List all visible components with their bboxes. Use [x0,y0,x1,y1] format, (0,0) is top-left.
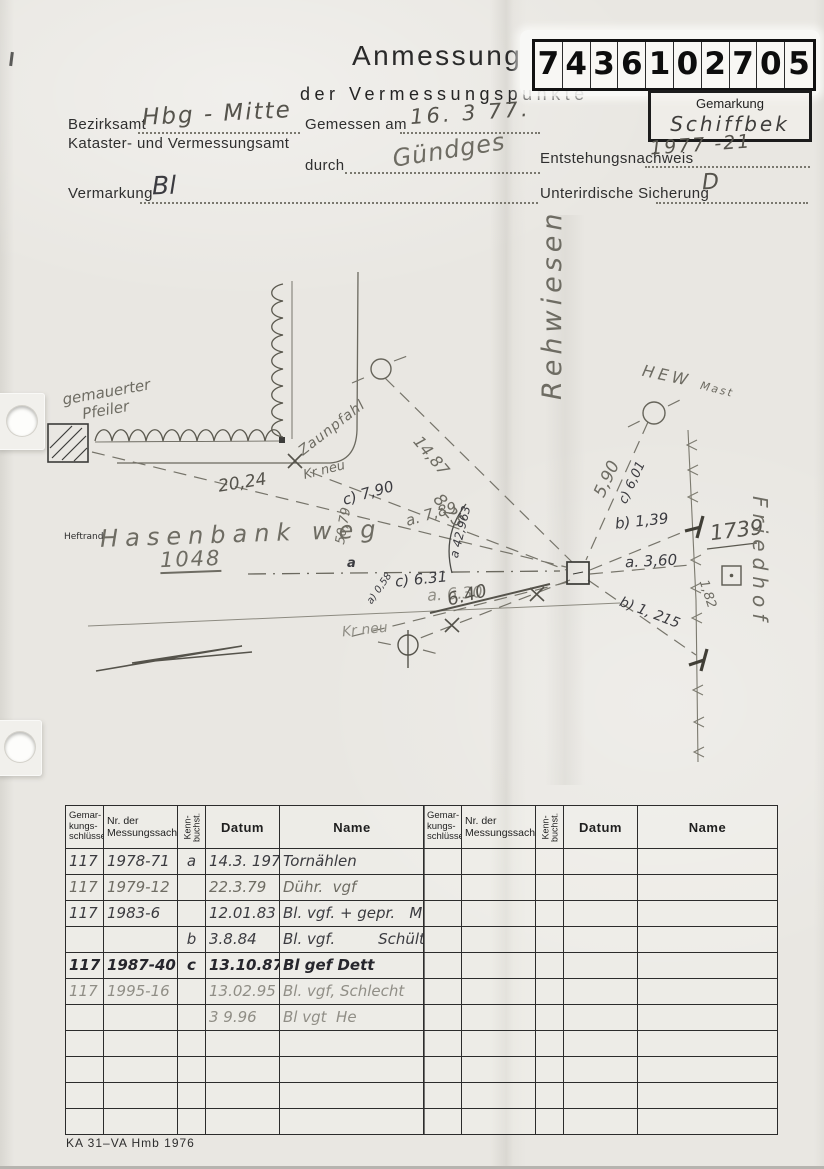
table-cell: 117 [66,901,104,927]
table-cell [536,1109,564,1135]
zaunpfahl-circle [371,359,391,379]
table-cell [462,1109,536,1135]
table-row [424,1109,778,1135]
table-row: 1171978-71a14.3. 1978Tornählen [66,849,425,875]
table-cell [462,1005,536,1031]
table-cell [206,1057,280,1083]
table-row [424,1005,778,1031]
table-cell [536,979,564,1005]
measurement-table-right: Gemar-kungs-schlüsselNr. derMessungssach… [423,805,778,1135]
handwritten-entry: 3.8.84 [209,930,257,948]
table-cell [564,849,638,875]
table-header-row: Gemar-kungs-schlüsselNr. derMessungssach… [66,806,425,849]
table-cell [462,1057,536,1083]
table-cell [104,1031,178,1057]
table-cell [104,1109,178,1135]
handwritten-entry: a [187,852,196,870]
table-cell [462,875,536,901]
column-header: Gemar-kungs-schlüssel [424,806,462,849]
handwritten-entry: Bl. vgf. + gepr. Ma [283,904,425,922]
table-cell [424,875,462,901]
table-cell: Bl. vgf. Schültke [280,927,425,953]
table-cell [206,1031,280,1057]
table-cell [178,1083,206,1109]
column-header: Name [280,806,425,849]
survey-rays [92,355,696,655]
table-cell [462,1031,536,1057]
table-row [424,1057,778,1083]
handwritten-entry: 3 9.96 [209,1008,257,1026]
table-cell [104,927,178,953]
table-cell [462,979,536,1005]
table-cell: 22.3.79 [206,875,280,901]
table-cell: 1978-71 [104,849,178,875]
table-cell [178,1057,206,1083]
pillar-symbol [48,424,88,462]
table-cell: 117 [66,953,104,979]
table-cell: b [178,927,206,953]
table-cell [280,1031,425,1057]
handwritten-entry: 1983-6 [107,904,160,922]
table-cell: 1979-12 [104,875,178,901]
handwritten-entry: 22.3.79 [209,878,266,896]
table-cell [564,1005,638,1031]
table-row [66,1031,425,1057]
table-cell [564,1031,638,1057]
table-cell [536,901,564,927]
table-row [424,901,778,927]
scanned-survey-form: Anmessung der Vermessungspunkte 7 4 3 6 … [0,0,824,1169]
table-cell [424,1057,462,1083]
table-cell [536,1005,564,1031]
table-cell [66,1005,104,1031]
table-cell [564,953,638,979]
table-cell [424,1005,462,1031]
table-row [424,1031,778,1057]
table-cell [424,1031,462,1057]
table-row [66,1083,425,1109]
table-cell: 117 [66,849,104,875]
table-cell [178,875,206,901]
table-cell [462,901,536,927]
column-header: Kenn-buchst. [536,806,564,849]
table-cell [424,849,462,875]
table-cell [536,953,564,979]
table-cell [536,1031,564,1057]
table-cell [280,1057,425,1083]
table-header-row: Gemar-kungs-schlüsselNr. derMessungssach… [424,806,778,849]
table-cell [564,901,638,927]
table-cell [206,1109,280,1135]
fence-post-band [272,281,292,439]
table-cell [178,901,206,927]
table-row [424,875,778,901]
table-cell: 3.8.84 [206,927,280,953]
table-cell [638,1057,778,1083]
table-cell [104,1057,178,1083]
table-cell [66,1057,104,1083]
table-cell [424,1083,462,1109]
table-cell [66,927,104,953]
column-header: Gemar-kungs-schlüssel [66,806,104,849]
table-cell: 1983-6 [104,901,178,927]
table-cell [66,1083,104,1109]
table-cell [462,1083,536,1109]
handwritten-entry: 13.10.87 [209,956,280,974]
table-cell [424,979,462,1005]
table-cell [564,1109,638,1135]
table-row [66,1057,425,1083]
scribble [96,646,252,671]
table-row: 1171983-612.01.83Bl. vgf. + gepr. Ma [66,901,425,927]
table-cell [178,1005,206,1031]
handwritten-entry: Tornählen [283,852,357,870]
table-cell [638,849,778,875]
sketch-label-1048: 1048 [160,546,222,574]
handwritten-entry: Bl. vgf. Schültke [283,930,425,948]
table-row: b3.8.84Bl. vgf. Schültke [66,927,425,953]
table-cell [536,927,564,953]
table-row: 1171987-40c13.10.87Bl gef Dett [66,953,425,979]
table-cell [564,875,638,901]
handwritten-entry: 13.02.95 [209,982,276,1000]
handwritten-entry: 12.01.83 [209,904,276,922]
table-cell [638,927,778,953]
table-cell [104,1083,178,1109]
table-cell: 13.02.95 [206,979,280,1005]
table-cell [638,1083,778,1109]
table: Gemar-kungs-schlüsselNr. derMessungssach… [65,805,425,1135]
handwritten-entry: 117 [69,956,100,974]
table-cell: 117 [66,979,104,1005]
krneu-circle [398,630,418,668]
sketch-measure-a360: a. 3,60 [625,551,678,572]
table-cell [638,1005,778,1031]
table-cell [564,1083,638,1109]
sketch-point-letter-a: a [347,556,356,571]
table-row [424,979,778,1005]
table-row: 3 9.96Bl vgt He [66,1005,425,1031]
table-cell [424,953,462,979]
table-cell: Bl. vgf. + gepr. Ma [280,901,425,927]
handwritten-entry: Bl. vgf, Schlecht [283,982,404,1000]
table-row: 1171995-1613.02.95Bl. vgf, Schlecht [66,979,425,1005]
table-cell [462,849,536,875]
handwritten-entry: 1987-40 [107,956,176,974]
column-header: Kenn-buchst. [178,806,206,849]
sketch-label-friedhof: Friedhof [748,496,772,626]
table-cell [462,927,536,953]
table-cell: Dühr. vgf [280,875,425,901]
handwritten-entry: 1979-12 [107,878,170,896]
table-cell [424,1109,462,1135]
fence-coil [95,430,285,443]
table-cell: Bl. vgf, Schlecht [280,979,425,1005]
column-header: Nr. derMessungssache [462,806,536,849]
table-cell [66,1109,104,1135]
table-cell [638,1109,778,1135]
handwritten-entry: 1995-16 [107,982,170,1000]
table-cell: 12.01.83 [206,901,280,927]
table-cell [536,1057,564,1083]
table-cell [104,1005,178,1031]
handwritten-entry: 117 [69,878,98,896]
handwritten-entry: 117 [69,852,98,870]
table-row [424,1083,778,1109]
table-cell [424,901,462,927]
table-cell [638,901,778,927]
table-cell: 13.10.87 [206,953,280,979]
table-cell: Bl vgt He [280,1005,425,1031]
table-cell [178,979,206,1005]
sketch-label-rehwiesen: Rehwiesen [537,209,568,400]
table-cell: 117 [66,875,104,901]
table-cell: a [178,849,206,875]
table-cell: 1995-16 [104,979,178,1005]
table-row [424,849,778,875]
table-cell: 1987-40 [104,953,178,979]
table-cell [462,953,536,979]
table-cell [564,979,638,1005]
table-row [66,1109,425,1135]
column-header: Datum [564,806,638,849]
column-header: Nr. derMessungssache [104,806,178,849]
table-cell [536,849,564,875]
table-cell [638,979,778,1005]
table-row: 1171979-1222.3.79Dühr. vgf [66,875,425,901]
handwritten-entry: b [187,930,197,948]
table-cell [280,1083,425,1109]
column-header: Datum [206,806,280,849]
table-cell [638,875,778,901]
central-point-square [567,562,589,584]
table-cell [564,927,638,953]
handwritten-entry: 14.3. 1978 [209,852,280,870]
table-cell: Bl gef Dett [280,953,425,979]
measurement-table-left: Gemar-kungs-schlüsselNr. derMessungssach… [65,805,425,1135]
table-cell: c [178,953,206,979]
table-cell [178,1031,206,1057]
handwritten-entry: c [187,956,196,974]
table-cell [178,1109,206,1135]
table: Gemar-kungs-schlüsselNr. derMessungssach… [423,805,778,1135]
handwritten-entry: 117 [69,904,98,922]
table-cell [536,875,564,901]
table-cell [638,1031,778,1057]
table-cell [280,1109,425,1135]
column-header: Name [638,806,778,849]
handwritten-entry: Dühr. vgf [283,878,356,896]
handwritten-entry: Bl vgt He [283,1008,357,1026]
handwritten-entry: 117 [69,982,98,1000]
form-code: KA 31–VA Hmb 1976 [66,1136,195,1150]
table-cell [638,953,778,979]
heftrand-label: Heftrand [64,532,103,542]
table-cell [424,927,462,953]
table-cell: 3 9.96 [206,1005,280,1031]
table-row [424,953,778,979]
table-row [424,927,778,953]
handwritten-entry: 1978-71 [107,852,170,870]
hew-mast-circle [643,402,665,424]
table-cell [536,1083,564,1109]
handwritten-entry: Bl gef Dett [283,956,374,974]
table-cell: 14.3. 1978 [206,849,280,875]
table-cell: Tornählen [280,849,425,875]
table-cell [66,1031,104,1057]
table-cell [564,1057,638,1083]
table-cell [206,1083,280,1109]
